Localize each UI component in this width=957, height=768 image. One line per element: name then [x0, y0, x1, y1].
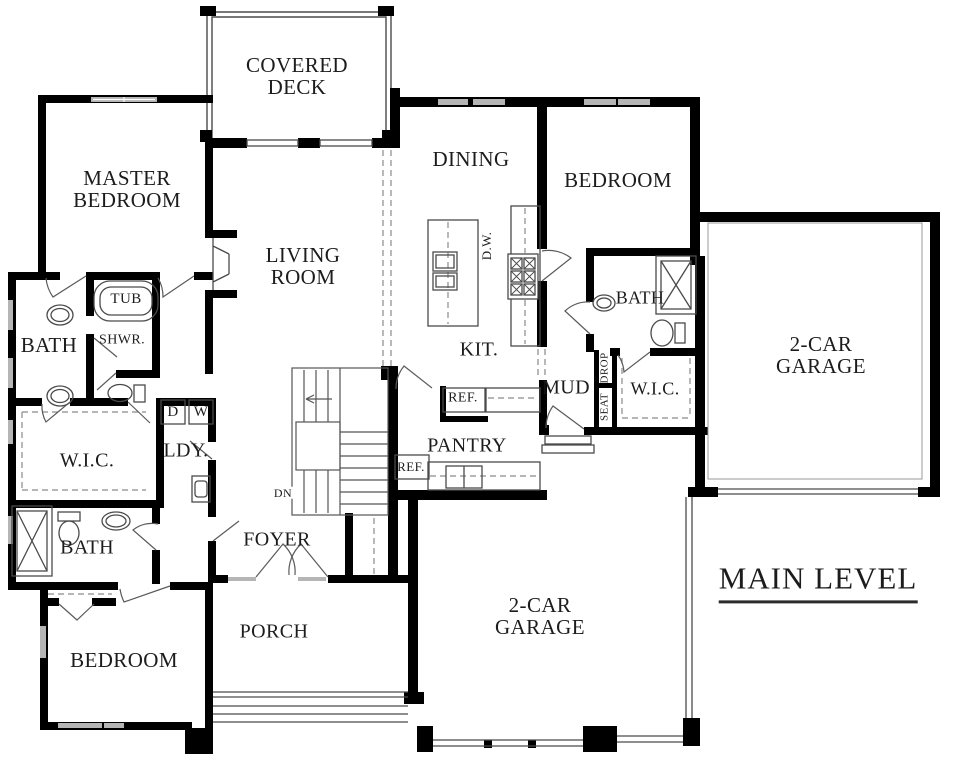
thin-lines — [213, 140, 922, 746]
room-label-bath-master: BATH — [21, 335, 77, 357]
room-label-kitchen: KIT. — [460, 340, 498, 361]
fixture-label-tub: TUB — [110, 292, 141, 308]
room-label-garage-right: 2-CAR GARAGE — [769, 334, 874, 378]
staircase — [292, 368, 388, 515]
room-label-ldy: LDY. — [163, 441, 208, 462]
room-label-pantry: PANTRY — [427, 436, 506, 457]
room-label-dining: DINING — [432, 149, 509, 171]
fixture-label-dryer: D — [167, 405, 178, 421]
room-label-bath-right: BATH — [616, 289, 665, 308]
plan-title: MAIN LEVEL — [719, 562, 918, 603]
room-label-bedroom-lower: BEDROOM — [70, 650, 178, 672]
walls — [8, 6, 940, 754]
laundry-sink-icon — [192, 476, 210, 502]
floor-plan: COVERED DECK MASTER BEDROOM LIVING ROOM … — [0, 0, 957, 768]
room-label-covered-deck: COVERED DECK — [237, 55, 357, 99]
fixture-label-ref-lower: REF. — [397, 460, 425, 474]
fixture-label-seat: SEAT — [599, 393, 610, 421]
fixture-label-dishwasher: D.W. — [480, 232, 494, 261]
fixture-label-drop: DROP — [599, 353, 610, 384]
room-label-wic-master: W.I.C. — [60, 451, 114, 472]
room-label-garage-bottom: 2-CAR GARAGE — [488, 595, 593, 639]
stairs-dn-label: DN — [273, 487, 293, 499]
kitchen-island — [428, 220, 478, 326]
room-label-porch: PORCH — [240, 622, 309, 643]
range-icon — [508, 254, 538, 299]
room-label-wic-right: W.I.C. — [630, 380, 679, 399]
room-label-master-bedroom: MASTER BEDROOM — [55, 168, 200, 212]
room-label-bedroom-right: BEDROOM — [564, 170, 672, 192]
room-label-bath-lower: BATH — [60, 538, 114, 559]
room-label-living-room: LIVING ROOM — [256, 245, 351, 289]
room-label-mud: MUD — [542, 378, 590, 399]
fixture-label-washer: W — [194, 405, 209, 421]
fixture-label-ref-upper: REF. — [448, 392, 478, 407]
fixture-label-shwr: SHWR. — [99, 334, 145, 349]
room-label-foyer: FOYER — [243, 530, 311, 551]
